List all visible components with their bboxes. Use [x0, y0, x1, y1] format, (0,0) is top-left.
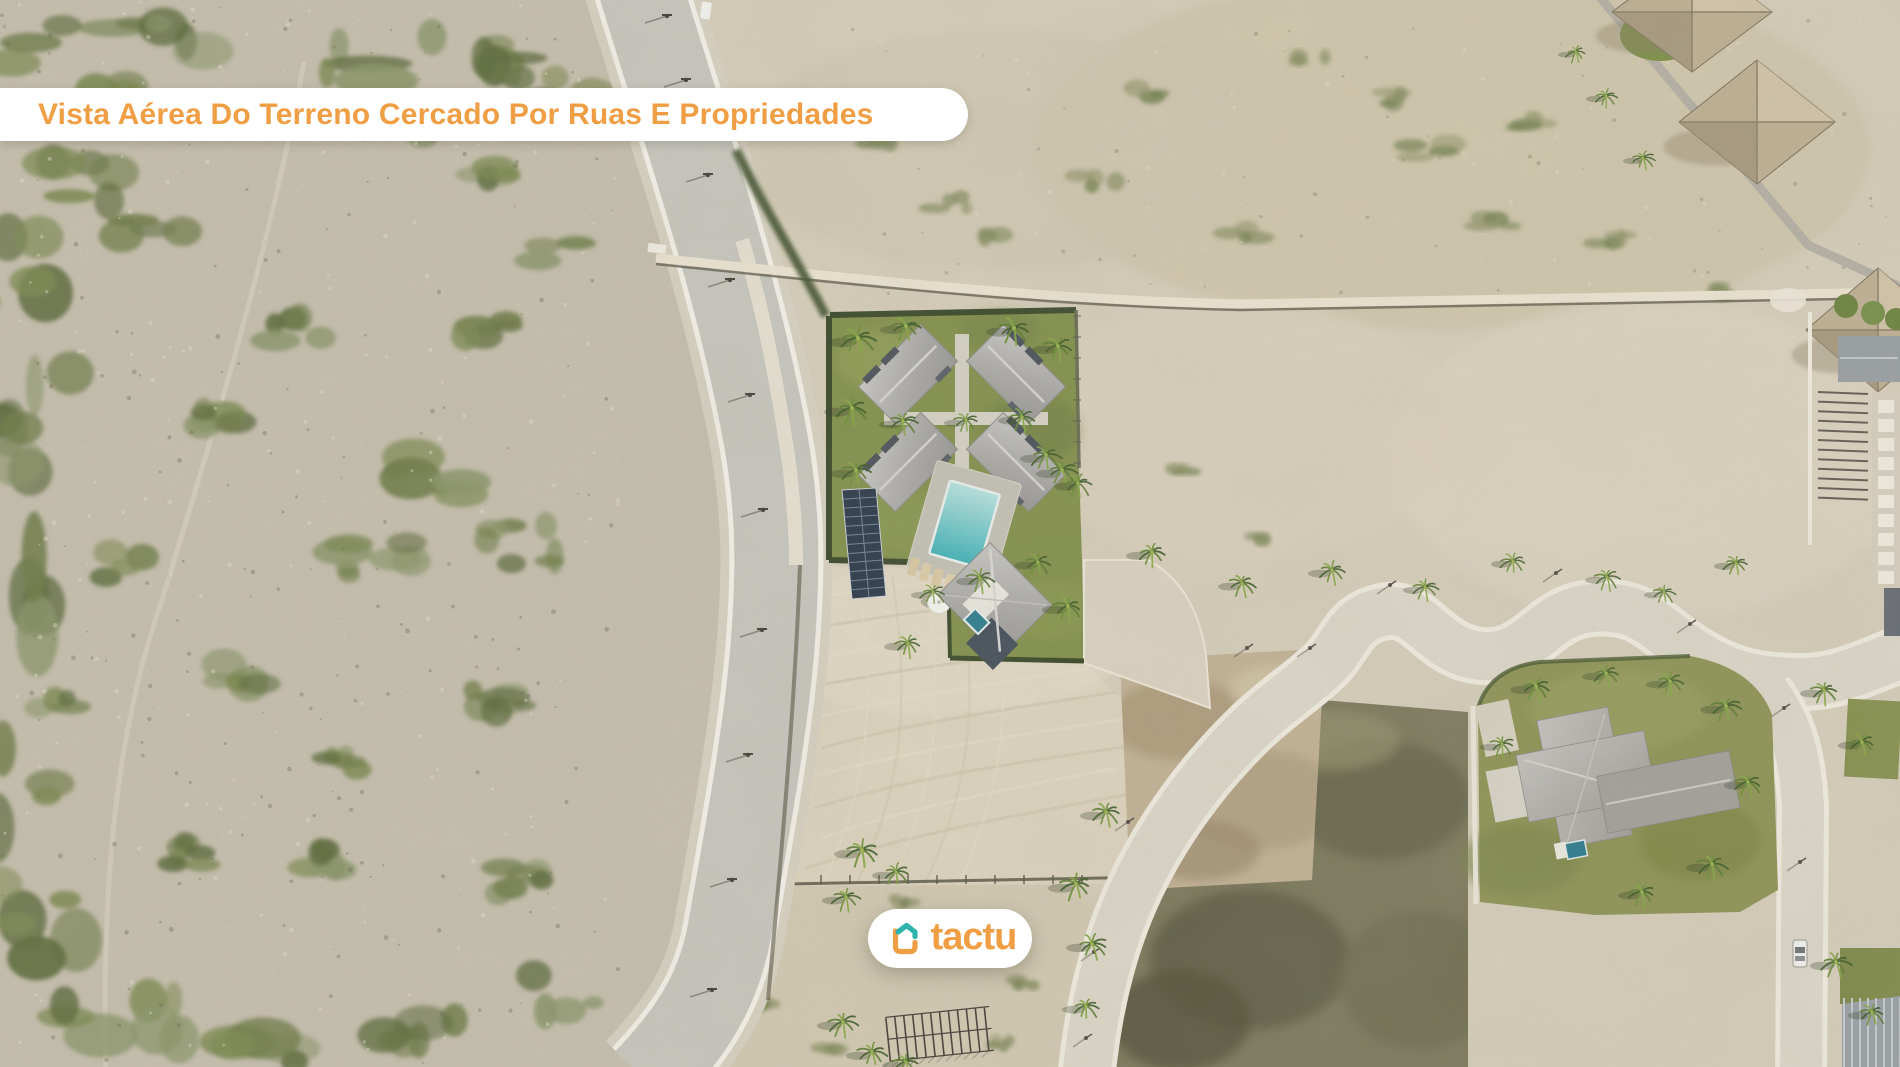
title-banner: Vista Aérea Do Terreno Cercado Por Ruas …: [0, 88, 968, 141]
brand-logo-pill: tactu: [868, 909, 1032, 968]
grain-overlay: [0, 0, 1900, 1067]
social-media-image: Vista Aérea Do Terreno Cercado Por Ruas …: [0, 0, 1900, 1067]
page-title: Vista Aérea Do Terreno Cercado Por Ruas …: [38, 98, 874, 132]
house-logo-icon: [884, 919, 924, 959]
aerial-photo-background: [0, 0, 1900, 1067]
brand-name: tactu: [931, 918, 1017, 956]
